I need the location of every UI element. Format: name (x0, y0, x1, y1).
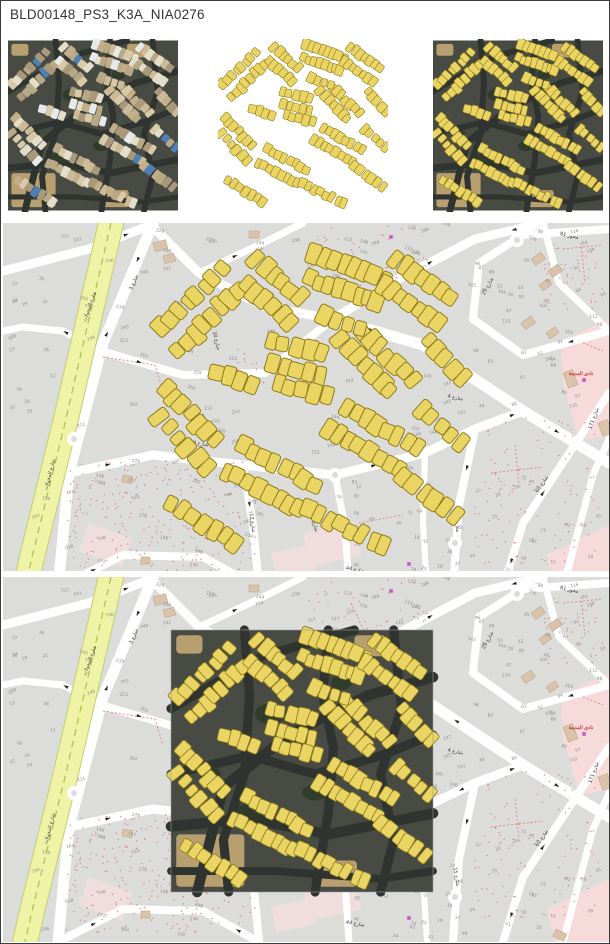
svg-text:98: 98 (597, 676, 603, 682)
poi-marker (389, 235, 393, 239)
svg-text:248: 248 (163, 602, 172, 609)
satellite-layer-thumb3 (433, 39, 603, 211)
page-title: BLD00148_PS3_K3A_NIA0276 (10, 7, 205, 22)
svg-text:46: 46 (538, 583, 544, 589)
svg-text:151: 151 (457, 409, 466, 416)
svg-text:102: 102 (539, 303, 548, 309)
svg-text:262: 262 (129, 755, 138, 762)
svg-text:29: 29 (24, 753, 30, 759)
svg-text:98: 98 (597, 322, 603, 328)
svg-text:11: 11 (50, 373, 56, 379)
svg-text:158: 158 (42, 495, 51, 502)
svg-text:213: 213 (120, 692, 128, 698)
svg-text:56: 56 (473, 702, 479, 709)
svg-text:21: 21 (42, 653, 48, 659)
svg-text:61: 61 (521, 704, 527, 710)
svg-text:54: 54 (469, 907, 475, 913)
svg-text:50: 50 (521, 909, 527, 916)
svg-text:221: 221 (163, 620, 172, 627)
svg-text:86: 86 (489, 269, 495, 275)
svg-text:50: 50 (521, 555, 527, 562)
thumbnail-footprints-on-satellite (433, 39, 603, 212)
svg-text:63: 63 (582, 594, 588, 600)
poi-marker (407, 916, 411, 920)
svg-text:53: 53 (518, 639, 524, 645)
svg-text:118: 118 (395, 619, 404, 626)
report-card: BLD00148_PS3_K3A_NIA0276 217235238240243… (0, 0, 610, 944)
svg-text:278: 278 (131, 458, 140, 465)
svg-text:151: 151 (457, 763, 466, 770)
svg-text:22: 22 (445, 891, 452, 898)
svg-text:66: 66 (550, 716, 557, 723)
red-area-label: نادي المدينة (569, 371, 594, 377)
svg-text:175: 175 (248, 499, 257, 506)
red-area-label: نادي المدينة (569, 725, 594, 731)
svg-text:251: 251 (229, 356, 237, 362)
svg-text:26: 26 (43, 347, 49, 354)
svg-text:253: 253 (231, 409, 240, 416)
svg-text:45A: 45A (224, 492, 233, 499)
svg-text:57: 57 (520, 375, 526, 381)
svg-text:73: 73 (540, 881, 546, 888)
poi-marker (582, 732, 586, 736)
svg-text:95: 95 (524, 257, 530, 263)
svg-text:110: 110 (569, 756, 578, 763)
svg-text:275: 275 (190, 916, 199, 922)
svg-text:76: 76 (336, 494, 342, 500)
svg-text:47: 47 (531, 539, 537, 545)
svg-text:150: 150 (177, 931, 186, 938)
svg-text:57: 57 (520, 729, 526, 735)
svg-text:275: 275 (190, 562, 199, 568)
svg-text:143: 143 (423, 373, 432, 380)
svg-text:28: 28 (588, 908, 594, 914)
svg-text:15: 15 (550, 913, 556, 919)
svg-text:196: 196 (41, 926, 50, 933)
svg-text:127: 127 (331, 616, 340, 622)
poi-marker (407, 562, 411, 566)
svg-text:114: 114 (502, 672, 510, 678)
svg-text:29: 29 (24, 399, 30, 405)
svg-text:37: 37 (454, 915, 460, 922)
svg-text:113: 113 (343, 590, 352, 597)
svg-text:83: 83 (488, 713, 494, 719)
svg-text:102: 102 (539, 657, 548, 663)
landmark-building (141, 557, 150, 564)
svg-text:47: 47 (531, 893, 537, 899)
thumbnail-building-footprints (218, 39, 388, 212)
svg-text:114: 114 (502, 318, 510, 324)
svg-text:213: 213 (120, 338, 128, 344)
svg-text:63: 63 (582, 240, 588, 246)
svg-text:53: 53 (518, 285, 524, 291)
svg-text:113: 113 (343, 236, 352, 243)
svg-text:49: 49 (479, 757, 485, 763)
landmark-building (141, 911, 150, 918)
svg-text:255: 255 (193, 369, 202, 376)
svg-text:247: 247 (73, 591, 82, 598)
svg-text:26: 26 (43, 701, 49, 708)
svg-text:83: 83 (488, 359, 494, 365)
svg-text:152: 152 (311, 449, 320, 456)
svg-text:112: 112 (589, 668, 598, 674)
svg-text:133: 133 (408, 225, 416, 231)
svg-text:101: 101 (468, 636, 477, 643)
svg-text:212: 212 (204, 405, 213, 412)
svg-text:153: 153 (345, 378, 354, 384)
svg-text:230: 230 (105, 612, 114, 618)
svg-text:278: 278 (131, 812, 140, 819)
svg-text:110: 110 (569, 402, 578, 409)
svg-text:217: 217 (61, 588, 70, 594)
svg-text:10: 10 (12, 299, 18, 306)
svg-text:221: 221 (163, 266, 172, 273)
svg-text:56: 56 (581, 522, 588, 529)
svg-text:33: 33 (536, 924, 542, 931)
svg-text:19: 19 (437, 917, 444, 924)
svg-text:37: 37 (454, 561, 460, 568)
svg-text:56: 56 (581, 876, 588, 883)
map-cadastral-with-footprint-overlay: 2172352382402432452462472492502362392412… (3, 223, 609, 571)
map-cadastral-with-satellite-patch: 2172352382402432452462472492502362392412… (3, 577, 609, 942)
poi-marker (389, 589, 393, 593)
svg-text:26: 26 (354, 896, 360, 902)
svg-text:276: 276 (139, 512, 148, 518)
svg-text:95: 95 (524, 611, 530, 617)
svg-text:14: 14 (414, 535, 420, 541)
svg-text:217: 217 (61, 234, 70, 240)
svg-text:56: 56 (473, 348, 479, 355)
footprint-thumbnail-layer (218, 39, 388, 211)
svg-text:101: 101 (468, 282, 477, 289)
svg-text:41: 41 (428, 935, 434, 941)
svg-text:54: 54 (469, 553, 475, 559)
svg-text:15: 15 (550, 559, 556, 565)
satellite-layer-thumb1 (8, 39, 178, 211)
thumbnail-satellite-image (8, 39, 178, 212)
svg-text:47: 47 (506, 662, 512, 668)
svg-text:106: 106 (435, 771, 444, 777)
svg-text:53: 53 (513, 484, 519, 491)
svg-text:244: 244 (256, 594, 265, 601)
svg-text:158: 158 (42, 849, 51, 856)
svg-text:49: 49 (479, 403, 485, 409)
svg-text:19: 19 (437, 563, 444, 570)
svg-text:86: 86 (489, 623, 495, 629)
landmark-building (249, 231, 259, 238)
svg-text:48: 48 (462, 930, 468, 936)
landmark-building (249, 585, 259, 592)
svg-text:66: 66 (550, 362, 557, 369)
svg-text:53: 53 (513, 838, 519, 845)
satellite-layer-patch (166, 626, 440, 892)
svg-text:46: 46 (538, 229, 544, 235)
svg-text:47: 47 (506, 308, 512, 314)
svg-text:112: 112 (589, 314, 598, 320)
svg-text:244: 244 (256, 240, 265, 247)
svg-text:21: 21 (42, 299, 48, 305)
svg-text:11: 11 (50, 727, 56, 733)
svg-text:96: 96 (475, 261, 481, 267)
svg-text:262: 262 (129, 401, 138, 408)
svg-text:248: 248 (163, 248, 172, 255)
svg-text:230: 230 (105, 258, 114, 264)
satellite-patch (166, 626, 440, 892)
svg-text:73: 73 (540, 527, 546, 534)
svg-text:10: 10 (12, 653, 18, 660)
svg-text:247: 247 (73, 237, 82, 244)
poi-marker (582, 378, 586, 382)
svg-text:61: 61 (521, 350, 527, 356)
svg-text:133: 133 (408, 579, 416, 585)
svg-text:22: 22 (445, 537, 452, 544)
svg-text:28: 28 (588, 554, 594, 560)
svg-text:276: 276 (139, 866, 148, 872)
svg-text:96: 96 (475, 615, 481, 621)
